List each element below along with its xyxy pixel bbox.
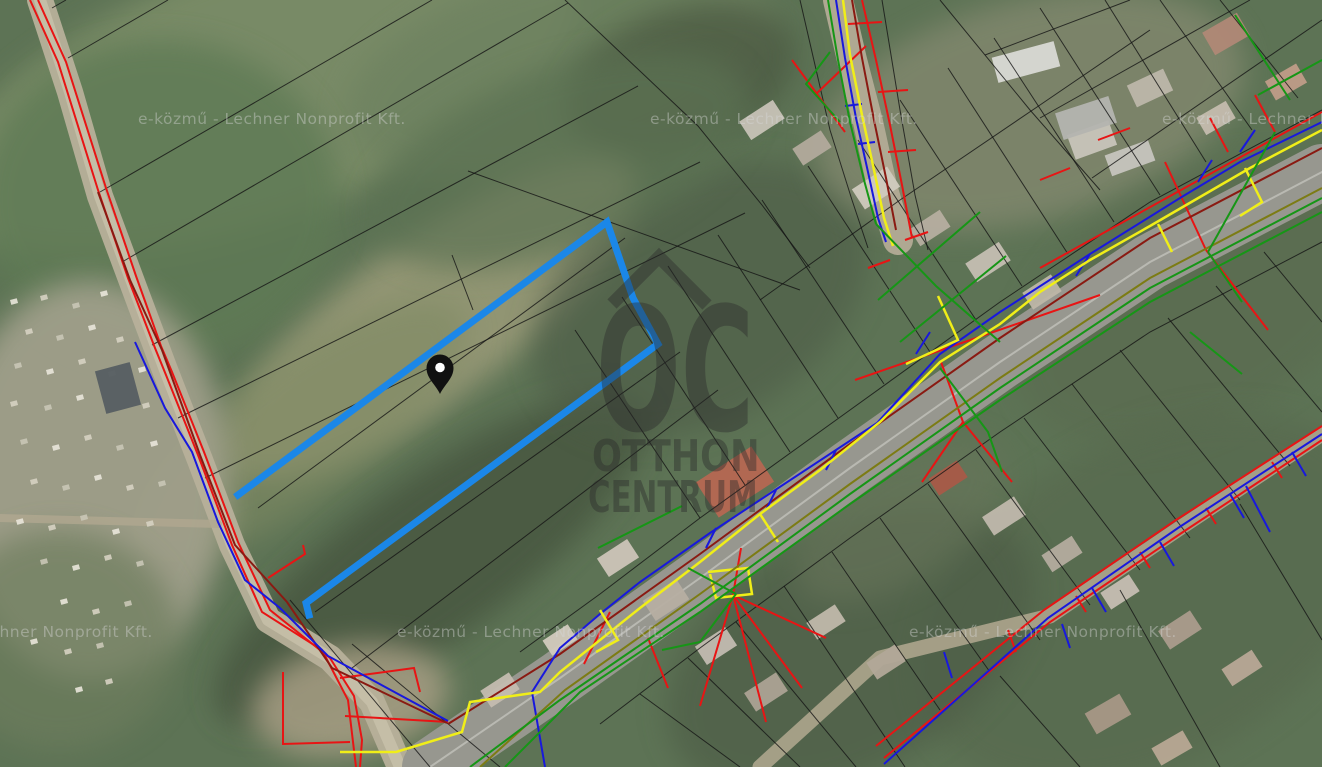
brand-line2: CENTRUM — [588, 471, 758, 522]
satellite-map-image: OC OTTHON CENTRUM — [0, 0, 1322, 767]
map-viewport[interactable]: OC OTTHON CENTRUM e-közmű - Lechner Nonp… — [0, 0, 1322, 767]
brand-watermark: OC OTTHON CENTRUM — [588, 257, 760, 522]
